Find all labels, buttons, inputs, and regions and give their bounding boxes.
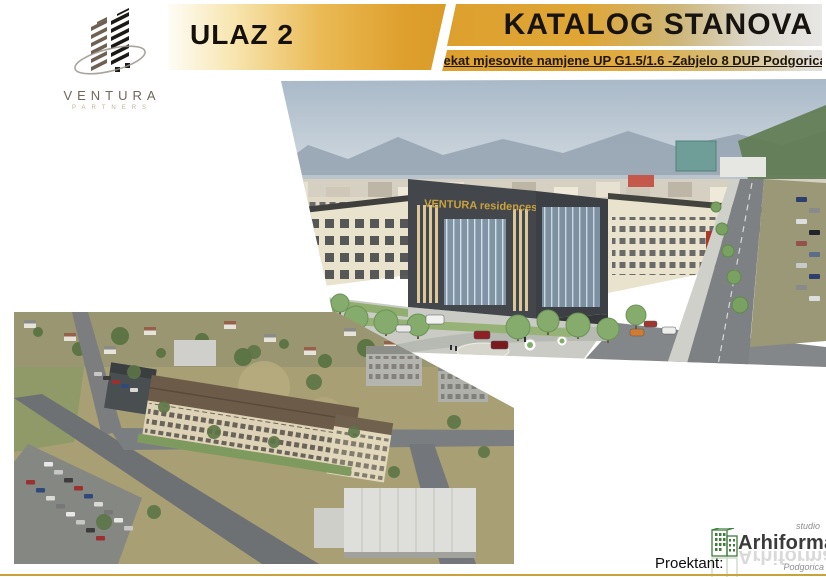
render-scene: VENTURA residences — [278, 79, 826, 367]
render-curtain-wall — [444, 219, 506, 305]
title-banner: KATALOG STANOVA Objekat mjesovite namjen… — [441, 4, 822, 71]
render-planter-shrub-2 — [560, 339, 565, 344]
subtitle-band: Objekat mjesovite namjene UP G1.5/1.6 -Z… — [441, 50, 822, 71]
ventura-building-icon — [69, 5, 155, 81]
ventura-wordmark: VENTURA — [56, 88, 168, 103]
studio-city: Podgorica — [783, 562, 824, 572]
entrance-banner: ULAZ 2 — [168, 4, 446, 70]
building-render-image: VENTURA residences — [278, 79, 826, 367]
ventura-partners-label: PARTNERS — [56, 105, 168, 111]
entrance-label: ULAZ 2 — [168, 19, 294, 51]
arhiforma-building-icon — [706, 528, 740, 577]
render-glass-tower-wall — [542, 207, 600, 307]
render-louvers-right — [512, 209, 530, 311]
render-left-wing-windows — [288, 219, 408, 281]
catalog-title: KATALOG STANOVA — [441, 4, 822, 46]
studio-word: studio — [796, 521, 820, 531]
catalog-slide-page: VENTURA PARTNERS ULAZ 2 KATALOG STANOVA … — [0, 0, 826, 577]
swoosh — [72, 41, 147, 80]
ventura-logo: VENTURA PARTNERS — [56, 5, 168, 111]
right-tower — [111, 8, 130, 72]
render-kiosk — [628, 175, 654, 187]
left-tower — [91, 17, 107, 71]
render-planter-shrub — [527, 342, 533, 348]
render-louvers — [414, 205, 438, 303]
arhiforma-logo: studio Arhiforma Arhiforma Podgorica — [704, 520, 824, 575]
bottom-gold-rule — [0, 574, 826, 576]
render-glass-building — [676, 141, 716, 171]
render-shed — [720, 157, 766, 177]
subtitle-text: Objekat mjesovite namjene UP G1.5/1.6 -Z… — [422, 53, 826, 68]
